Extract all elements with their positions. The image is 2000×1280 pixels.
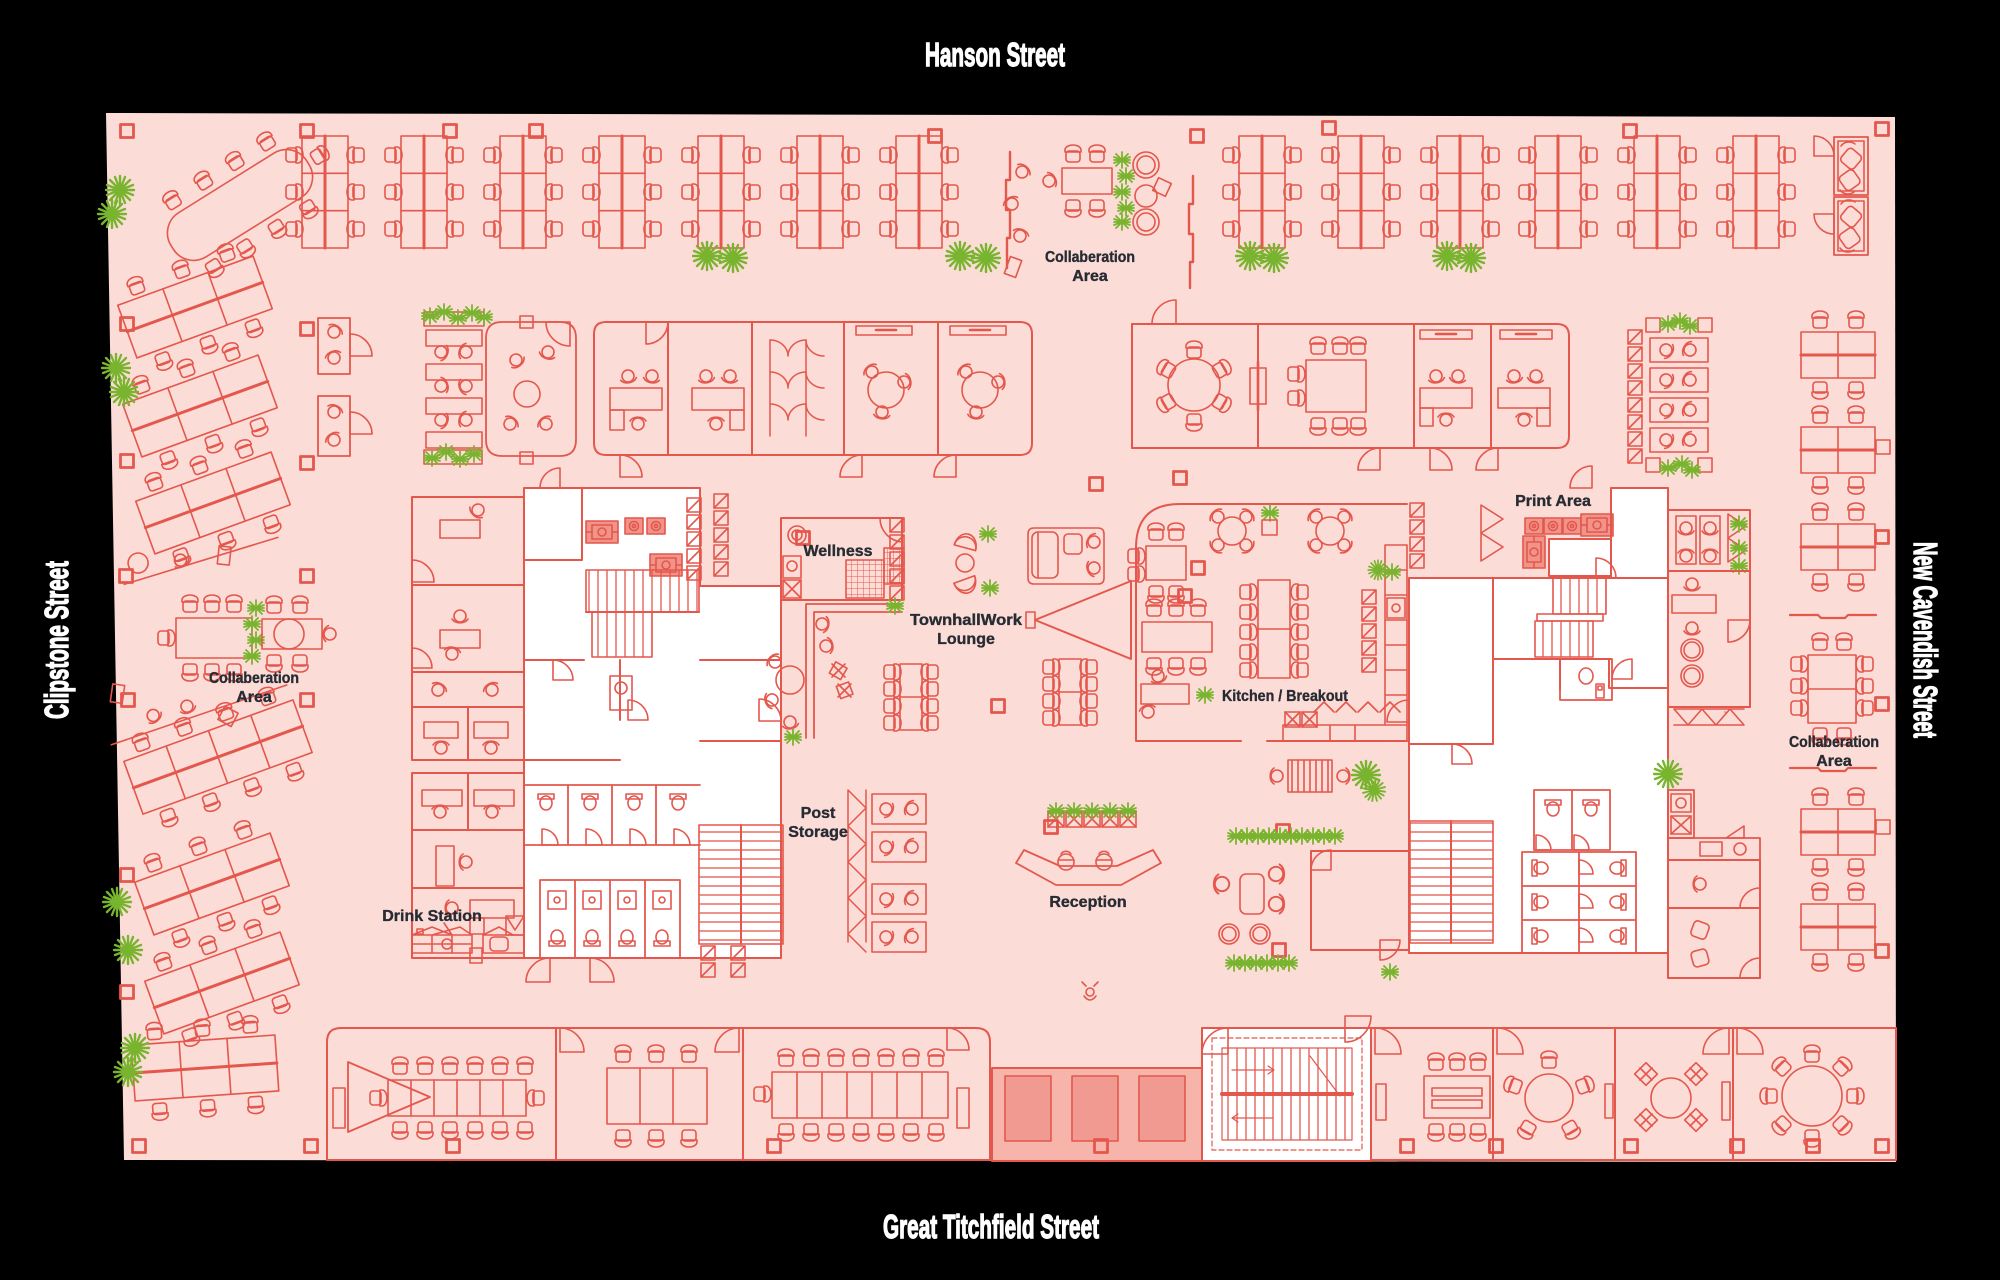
svg-text:Area: Area	[236, 689, 272, 706]
svg-text:Clipstone Street: Clipstone Street	[38, 561, 75, 719]
svg-text:Hanson Street: Hanson Street	[925, 36, 1065, 73]
svg-text:TownhallWork: TownhallWork	[910, 612, 1022, 629]
svg-text:Storage: Storage	[788, 824, 848, 841]
svg-text:Lounge: Lounge	[937, 631, 995, 648]
svg-text:Collaberation: Collaberation	[1789, 734, 1879, 751]
svg-text:Reception: Reception	[1049, 894, 1126, 911]
svg-text:Area: Area	[1072, 268, 1108, 285]
svg-text:Print Area: Print Area	[1515, 493, 1591, 510]
svg-text:Collaberation: Collaberation	[209, 670, 299, 687]
svg-text:New Cavendish Street: New Cavendish Street	[1907, 542, 1944, 738]
svg-text:Kitchen / Breakout: Kitchen / Breakout	[1222, 688, 1349, 705]
svg-text:Great Titchfield Street: Great Titchfield Street	[883, 1208, 1099, 1245]
svg-text:Collaberation: Collaberation	[1045, 249, 1135, 266]
svg-text:Drink Station: Drink Station	[382, 908, 482, 925]
svg-text:Area: Area	[1816, 753, 1852, 770]
svg-text:Wellness: Wellness	[803, 543, 872, 560]
svg-text:Post: Post	[801, 805, 836, 822]
